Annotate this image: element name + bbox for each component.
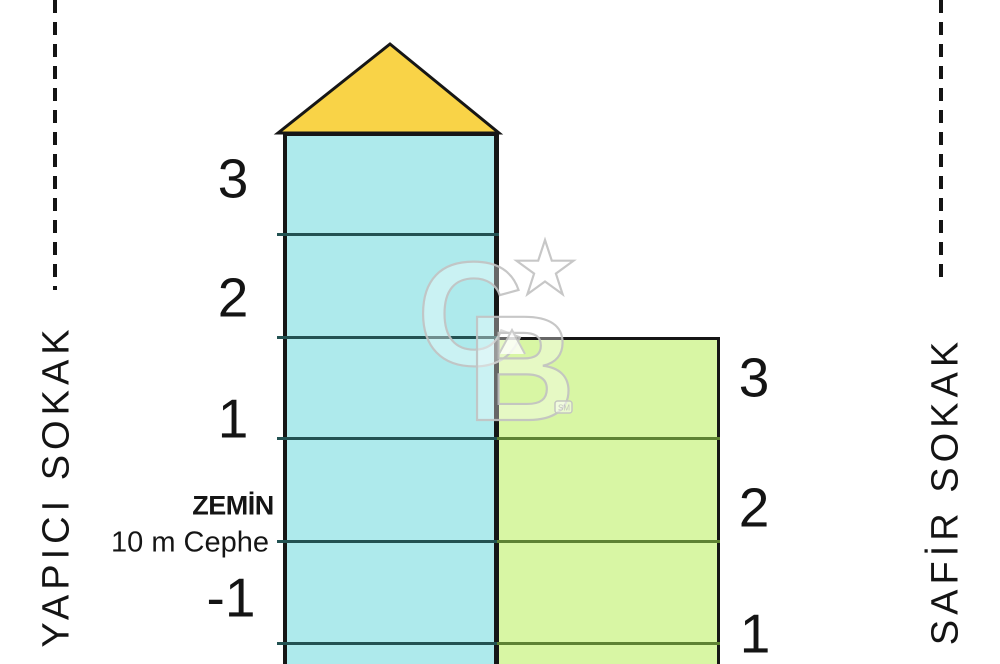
right-floor-label-1: 1 <box>740 607 771 662</box>
street-label-right: SAFİR SOKAK <box>925 337 968 645</box>
left-floor-label-minus1: -1 <box>207 571 256 626</box>
left-floor-label-3: 3 <box>218 152 249 207</box>
roof-triangle <box>270 38 510 138</box>
street-dashed-line-right <box>939 0 943 284</box>
floor-line <box>497 642 720 645</box>
floor-line <box>277 540 499 543</box>
street-label-left: YAPICI SOKAK <box>36 324 79 647</box>
cb-logo-watermark: C B SM <box>405 228 595 433</box>
right-floor-label-2: 2 <box>739 481 770 536</box>
frontage-label: 10 m Cephe <box>111 529 269 558</box>
left-floor-label-1: 1 <box>218 392 249 447</box>
elevation-diagram: YAPICI SOKAK SAFİR SOKAK 3 2 1 ZEMİN 10 … <box>0 0 1000 664</box>
floor-line <box>497 437 720 440</box>
floor-line <box>497 540 720 543</box>
floor-line <box>277 642 499 645</box>
watermark-sm-text: SM <box>558 404 570 413</box>
right-floor-label-3: 3 <box>739 351 770 406</box>
street-dashed-line-left <box>53 0 57 290</box>
floor-line <box>277 437 499 440</box>
ground-floor-label: ZEMİN <box>192 493 274 520</box>
left-floor-label-2: 2 <box>218 271 249 326</box>
